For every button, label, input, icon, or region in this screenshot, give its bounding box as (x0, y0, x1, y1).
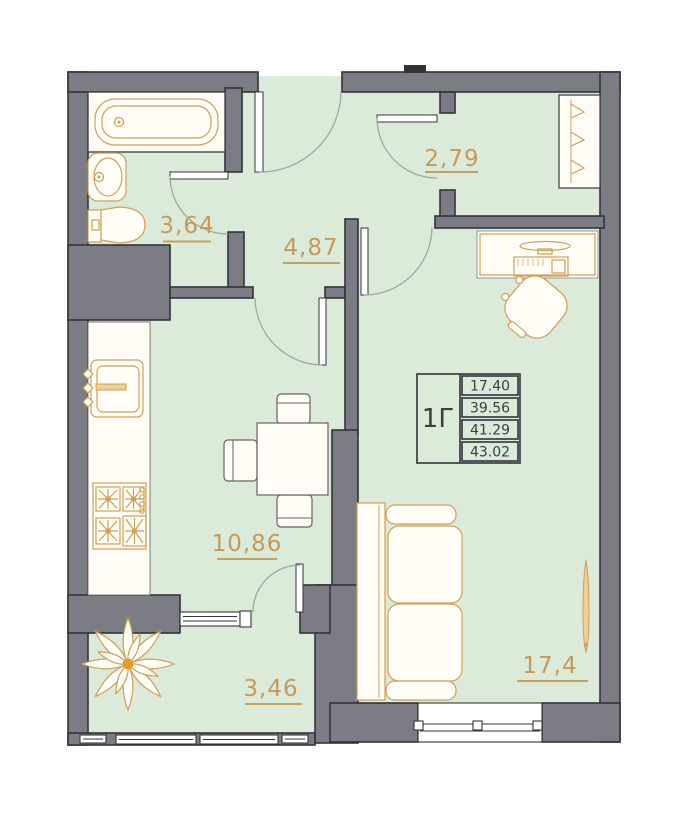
window-node (533, 721, 542, 730)
door-leaf (170, 172, 228, 179)
wardrobe (559, 95, 600, 188)
bathroom-sink (88, 153, 126, 201)
wall-living-left-wide (332, 430, 358, 605)
chair-bottom (277, 495, 312, 527)
door-leaf (319, 298, 326, 365)
door-leaf (377, 115, 437, 122)
kitchen-balcony-window (180, 611, 251, 627)
sofa-cushion (388, 526, 462, 603)
burner (96, 487, 120, 511)
wall-living-bottom-left (330, 703, 418, 742)
burner (96, 518, 120, 544)
door-leaf (296, 564, 303, 612)
wall-dressing-stub-top (440, 92, 455, 113)
floor-plan: 3,64 4,87 2,79 10,86 3,46 17,4 1Г 17.40 … (0, 0, 691, 821)
unit-type-label: 1Г (422, 404, 454, 434)
living-wall-decor (583, 560, 589, 652)
floor-entrance-gap (258, 76, 342, 92)
room-label-living: 17,4 (522, 653, 577, 679)
sofa (357, 503, 462, 700)
room-label-bathroom: 3,64 (159, 213, 214, 239)
plant (82, 618, 174, 710)
window-frame (180, 612, 240, 626)
wall-dressing-living (435, 216, 604, 228)
decor-dot (584, 643, 588, 647)
wall-top-right (342, 72, 620, 92)
desk (477, 231, 598, 278)
sink-spout (96, 384, 126, 390)
living-window (414, 703, 542, 742)
dining-table (257, 423, 328, 495)
window-node (473, 721, 482, 730)
unit-value: 41.29 (470, 423, 510, 439)
unit-value: 17.40 (470, 379, 510, 395)
balcony-door-frame-block (240, 611, 251, 627)
unit-value: 43.02 (470, 445, 510, 461)
sofa-cushion (388, 604, 462, 681)
wall-top-notch (404, 65, 426, 73)
chair-left (224, 440, 257, 481)
sofa-armrest-top (386, 505, 456, 524)
bathtub-body (88, 92, 225, 152)
room-label-kitchen: 10,86 (212, 531, 283, 557)
chair-top (277, 394, 310, 424)
wall-bathroom-right-lower (228, 232, 244, 290)
sofa-back (357, 503, 385, 700)
room-label-balcony: 3,46 (243, 676, 298, 702)
plant-center (123, 659, 134, 670)
door-leaf (361, 228, 368, 295)
wall-bathroom-bottom-mass (68, 245, 170, 320)
door-leaf (255, 92, 263, 172)
sink-faucet-dot (98, 176, 101, 179)
bathtub (88, 92, 225, 152)
decor-blade (583, 560, 589, 652)
bathtub-drain-dot (118, 121, 121, 124)
unit-value: 39.56 (470, 401, 510, 417)
wall-kitchen-door-jamb (325, 287, 345, 298)
wall-balcony-door-jamb (300, 585, 330, 633)
wall-left (68, 72, 88, 745)
window-node (414, 721, 423, 730)
wall-right (600, 72, 620, 742)
toilet-bowl (101, 207, 145, 243)
room-label-hallway: 4,87 (283, 235, 338, 261)
burner (123, 516, 146, 546)
toilet (88, 207, 145, 243)
wall-living-left-thin (345, 219, 358, 434)
sofa-armrest-bottom (386, 681, 456, 700)
room-label-dressing: 2,79 (424, 146, 479, 172)
wall-living-bottom-right (542, 703, 620, 742)
kitchen-sink (83, 360, 143, 417)
wall-dressing-stub-bottom (440, 190, 455, 218)
wall-bathroom-bottom-thin (170, 287, 253, 298)
wall-kitchen-balcony (68, 595, 180, 633)
wall-bathroom-right-upper (225, 88, 242, 172)
